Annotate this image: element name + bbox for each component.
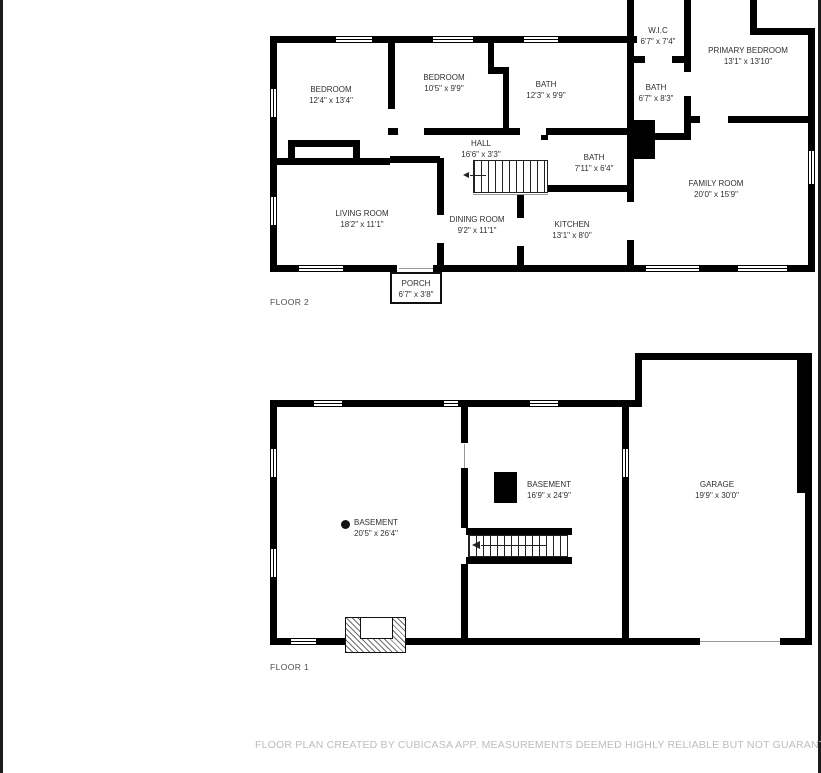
window xyxy=(270,88,277,118)
room-label: BATH 7'11" x 6'4" xyxy=(575,153,614,175)
room-name: GARAGE xyxy=(695,480,739,491)
wall xyxy=(474,36,523,43)
wall xyxy=(288,140,295,165)
room-name: DINING ROOM xyxy=(449,215,504,226)
wall xyxy=(270,36,277,88)
wall xyxy=(635,353,812,360)
solid-block xyxy=(494,472,517,503)
floor1-title: FLOOR 1 xyxy=(270,662,309,672)
room-dims: 20'0" x 15'9" xyxy=(689,190,744,201)
room-dims: 12'4" x 13'4" xyxy=(309,96,353,107)
stairs-arrow-icon xyxy=(472,541,480,549)
stairs-direction-line xyxy=(481,545,547,546)
stairs-direction-line xyxy=(470,175,486,176)
wall xyxy=(808,185,815,272)
staircase-floor2 xyxy=(473,160,548,193)
disclaimer-text: FLOOR PLAN CREATED BY CUBICASA APP. MEAS… xyxy=(255,739,821,751)
stairs-rail-line xyxy=(473,194,548,195)
wall xyxy=(541,185,634,192)
wall xyxy=(488,43,494,70)
room-name: KITCHEN xyxy=(552,220,591,231)
room-name: BATH xyxy=(639,83,674,94)
window xyxy=(313,400,343,407)
room-dims: 6'7" x 7'4" xyxy=(641,37,676,48)
wall xyxy=(622,478,629,638)
wall xyxy=(627,56,645,63)
wall xyxy=(288,140,360,147)
wall xyxy=(270,578,277,645)
floor2-title: FLOOR 2 xyxy=(270,297,309,307)
room-label: PRIMARY BEDROOM 13'1" x 13'10" xyxy=(708,46,788,68)
room-dims: 19'9" x 30'0" xyxy=(695,491,739,502)
room-label: BASEMENT 20'5" x 26'4" xyxy=(354,518,398,540)
wall xyxy=(343,400,443,407)
wall xyxy=(559,36,637,43)
room-dims: 18'2" x 11'1" xyxy=(335,220,388,231)
wall xyxy=(353,140,360,165)
window xyxy=(298,265,344,272)
room-label: LIVING ROOM 18'2" x 11'1" xyxy=(335,209,388,231)
window xyxy=(622,448,629,478)
door-opening xyxy=(399,268,433,269)
wall xyxy=(270,400,277,448)
floorplan-canvas: BEDROOM 12'4" x 13'4" BEDROOM 10'5" x 9'… xyxy=(0,0,821,773)
room-dims: 13'1" x 13'10" xyxy=(708,57,788,68)
wall xyxy=(541,135,548,140)
window xyxy=(523,36,559,43)
window xyxy=(432,36,474,43)
point-marker-icon xyxy=(341,520,350,529)
window xyxy=(645,265,700,272)
wall xyxy=(433,265,645,272)
wall xyxy=(684,116,700,123)
room-name: LIVING ROOM xyxy=(335,209,388,220)
wall xyxy=(627,0,634,140)
room-name: HALL xyxy=(461,139,500,150)
room-name: BEDROOM xyxy=(423,73,464,84)
wall xyxy=(805,493,812,645)
staircase-floor1 xyxy=(468,535,568,557)
wall xyxy=(797,353,812,493)
room-label: BASEMENT 16'9" x 24'9" xyxy=(527,480,571,502)
room-dims: 13'1" x 8'0" xyxy=(552,231,591,242)
wall xyxy=(700,265,737,272)
room-label: BATH 6'7" x 8'3" xyxy=(639,83,674,105)
room-name: W.I.C xyxy=(641,26,676,37)
wall xyxy=(672,56,691,63)
window xyxy=(737,265,788,272)
room-label: BATH 12'3" x 9'9" xyxy=(526,80,565,102)
image-left-border xyxy=(0,0,3,773)
room-dims: 16'6" x 3'3" xyxy=(461,150,500,161)
wall xyxy=(344,265,397,272)
room-label: BEDROOM 12'4" x 13'4" xyxy=(309,85,353,107)
room-name: BATH xyxy=(526,80,565,91)
wall xyxy=(517,195,524,218)
door-opening xyxy=(464,444,465,468)
wall xyxy=(437,243,444,272)
room-dims: 12'3" x 9'9" xyxy=(526,91,565,102)
wall xyxy=(461,468,468,528)
wall xyxy=(808,28,815,150)
wall xyxy=(270,36,335,43)
window xyxy=(270,448,277,478)
wall xyxy=(750,28,815,35)
room-label: HALL 16'6" x 3'3" xyxy=(461,139,500,161)
wall xyxy=(461,564,468,638)
room-name: BEDROOM xyxy=(309,85,353,96)
wall xyxy=(635,353,642,407)
room-name: BASEMENT xyxy=(527,480,571,491)
room-label: GARAGE 19'9" x 30'0" xyxy=(695,480,739,502)
room-dims: 6'7" x 3'8" xyxy=(399,290,434,301)
room-dims: 16'9" x 24'9" xyxy=(527,491,571,502)
room-label: FAMILY ROOM 20'0" x 15'9" xyxy=(689,179,744,201)
door-opening xyxy=(700,641,780,642)
wall xyxy=(390,156,440,163)
room-name: PORCH xyxy=(399,279,434,290)
wall xyxy=(466,557,572,564)
room-dims: 20'5" x 26'4" xyxy=(354,529,398,540)
room-name: BASEMENT xyxy=(354,518,398,529)
wall xyxy=(546,128,627,135)
window xyxy=(270,196,277,226)
wall xyxy=(559,400,642,407)
room-dims: 9'2" x 11'1" xyxy=(449,226,504,237)
room-dims: 10'5" x 9'9" xyxy=(423,84,464,95)
wall xyxy=(728,116,815,123)
room-dims: 6'7" x 8'3" xyxy=(639,94,674,105)
wall xyxy=(437,158,444,215)
room-label: DINING ROOM 9'2" x 11'1" xyxy=(449,215,504,237)
wall xyxy=(622,407,629,448)
wall xyxy=(503,74,509,135)
window xyxy=(808,150,815,185)
room-label: BEDROOM 10'5" x 9'9" xyxy=(423,73,464,95)
wall xyxy=(466,528,572,535)
window xyxy=(290,638,317,645)
room-label: KITCHEN 13'1" x 8'0" xyxy=(552,220,591,242)
wall xyxy=(270,478,277,548)
fireplace-firebox xyxy=(360,617,393,639)
wall xyxy=(388,43,395,109)
room-name: PRIMARY BEDROOM xyxy=(708,46,788,57)
wall xyxy=(373,36,432,43)
room-name: FAMILY ROOM xyxy=(689,179,744,190)
wall xyxy=(424,128,520,135)
wall xyxy=(517,246,524,265)
stairs-arrow-icon xyxy=(463,172,469,178)
window xyxy=(529,400,559,407)
window xyxy=(270,548,277,578)
wall xyxy=(488,67,509,74)
room-label: PORCH 6'7" x 3'8" xyxy=(399,279,434,301)
window xyxy=(443,400,459,407)
wall xyxy=(270,118,277,196)
solid-block xyxy=(627,120,655,159)
room-label: W.I.C 6'7" x 7'4" xyxy=(641,26,676,48)
room-dims: 7'11" x 6'4" xyxy=(575,164,614,175)
wall xyxy=(461,407,468,443)
window xyxy=(335,36,373,43)
wall xyxy=(627,240,634,272)
wall xyxy=(270,265,298,272)
room-name: BATH xyxy=(575,153,614,164)
wall xyxy=(388,128,398,135)
wall xyxy=(459,400,529,407)
